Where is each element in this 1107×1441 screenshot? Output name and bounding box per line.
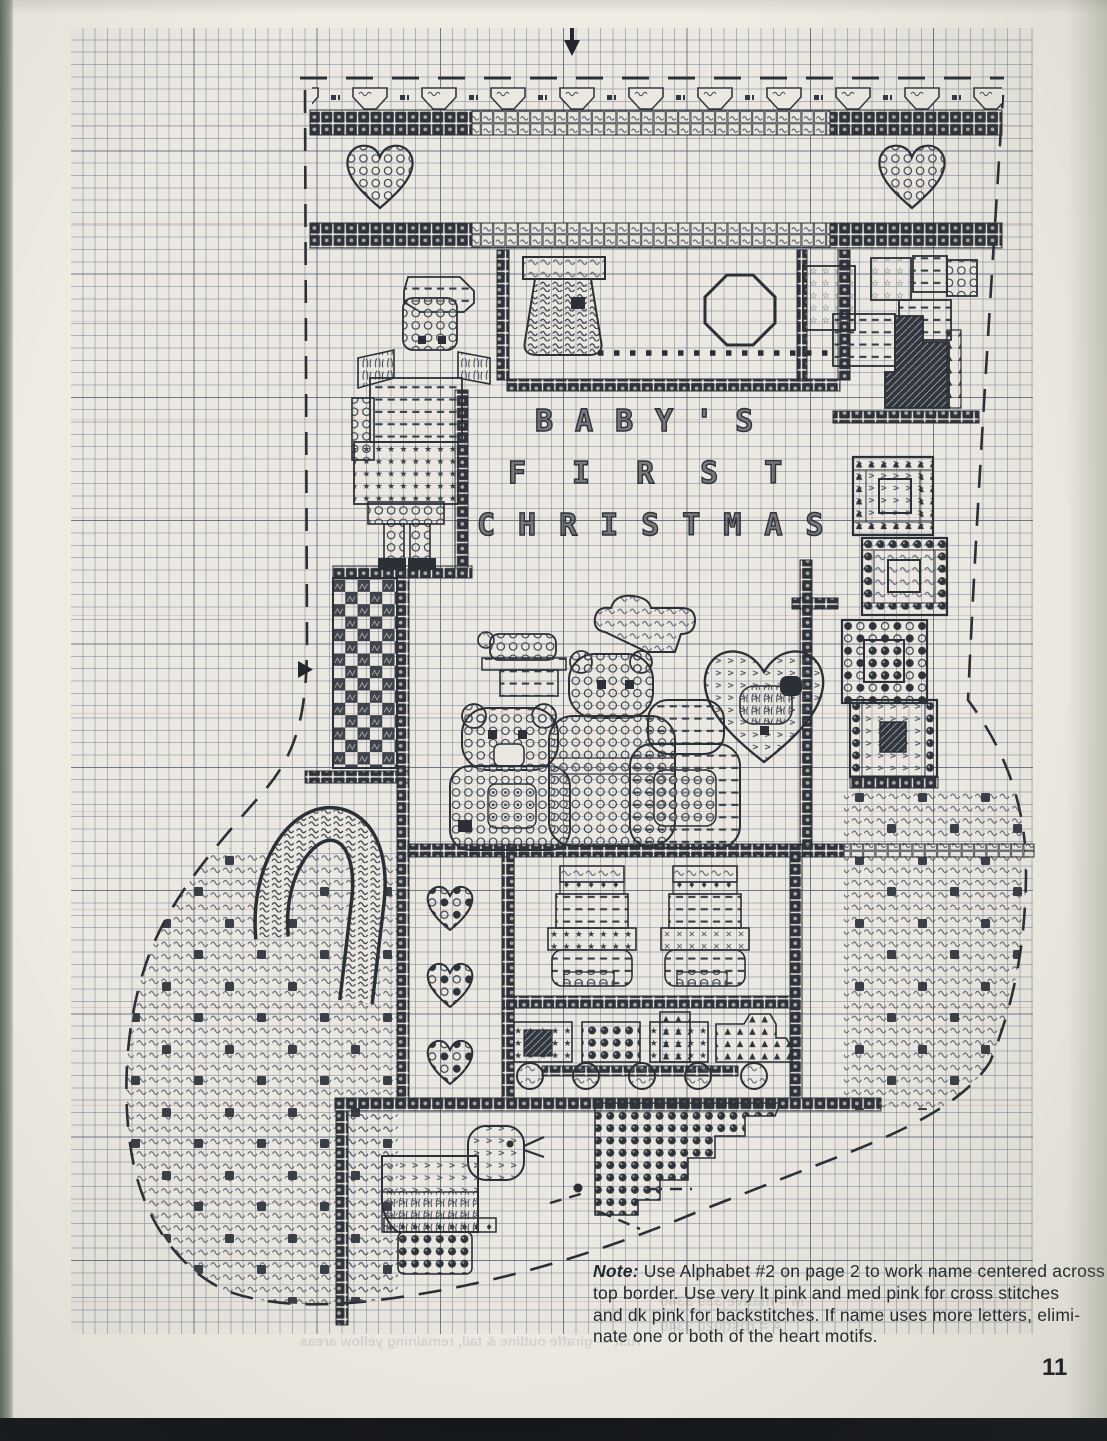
pull-toy-duck: [382, 1126, 544, 1274]
page-number: 11: [1042, 1354, 1067, 1382]
checkerboard-chimney: [333, 578, 397, 768]
cloud: [595, 596, 695, 652]
bleed-through-line3: rust — giraffe outline & tail, remaining…: [300, 1333, 641, 1349]
note-text-1: Use Alphabet #2 on page 2 to work name c…: [644, 1261, 1105, 1281]
bear-with-cap: [478, 632, 566, 696]
note-label: Note:: [593, 1261, 639, 1281]
scan-edge-bottom: [0, 1418, 1107, 1441]
bleed-through-line1: M = mauve 339 3340: [660, 1293, 804, 1310]
angel-doll: [352, 277, 490, 570]
chart-lettering-line2: FIRST: [508, 456, 828, 491]
stocking-motif: [523, 257, 605, 355]
heart-right: [879, 146, 944, 208]
note-line-1: Note: Use Alphabet #2 on page 2 to work …: [593, 1261, 1087, 1283]
center-arrow-top-icon: [564, 28, 580, 56]
gift-boxes-column: [842, 457, 947, 777]
cross-stitch-chart: ★ ☆ ♦ ▲ > ✕: [0, 0, 1107, 1441]
bead-stairs: [595, 1103, 780, 1215]
bunting-border: [312, 85, 1002, 113]
heart-left: [347, 146, 412, 208]
teddy-bears: [450, 632, 823, 850]
bleed-through-line2: A = rust 020 3340: [660, 1318, 782, 1335]
scan-shade-top: [0, 0, 1107, 14]
tilde-fill-right: [844, 788, 1036, 1110]
baby-romper-right: [661, 866, 749, 986]
small-hearts-column: [428, 887, 473, 1084]
toy-train: [514, 1012, 792, 1089]
page-curve-shadow: [1067, 0, 1107, 1418]
wreath: [705, 275, 775, 345]
chart-lettering-line1: BABY'S: [535, 404, 775, 439]
baby-romper-left: [548, 866, 636, 986]
chart-lettering-line3: CHRISTMAS: [477, 508, 847, 543]
scan-edge-left: [0, 0, 13, 1441]
